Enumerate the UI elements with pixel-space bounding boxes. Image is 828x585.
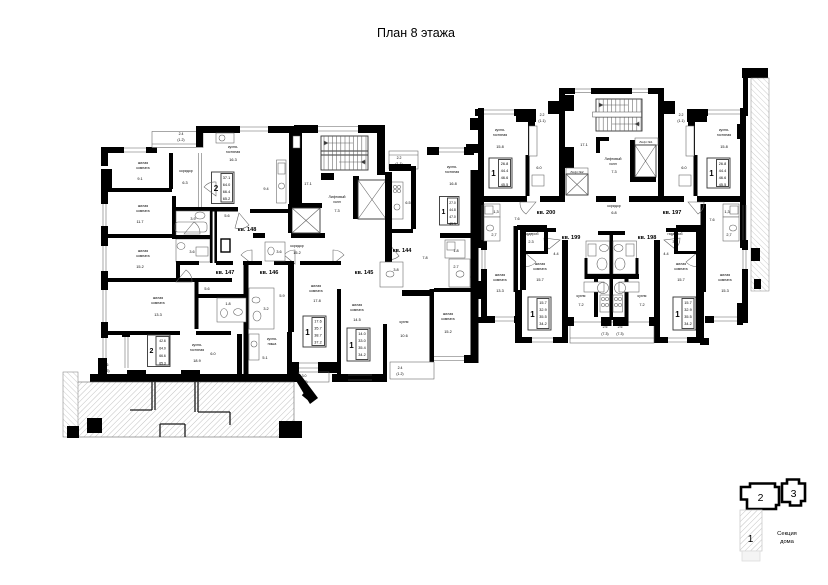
svg-text:34.2: 34.2 (358, 353, 365, 357)
svg-text:1: 1 (709, 169, 714, 178)
svg-text:кв. 198: кв. 198 (638, 235, 657, 241)
svg-text:2.3: 2.3 (528, 240, 533, 244)
svg-text:15.8: 15.8 (720, 145, 727, 149)
svg-text:1,3: 1,3 (724, 210, 729, 214)
svg-text:2.2: 2.2 (679, 113, 684, 117)
svg-text:кухня: кухня (577, 294, 586, 298)
svg-text:кв. 145: кв. 145 (355, 270, 374, 276)
svg-text:2: 2 (150, 348, 154, 355)
svg-text:комната: комната (718, 278, 731, 282)
svg-text:45.5: 45.5 (719, 183, 726, 187)
svg-text:кв. 147: кв. 147 (216, 270, 235, 276)
svg-text:11.7: 11.7 (136, 220, 143, 224)
svg-text:1: 1 (305, 328, 310, 337)
svg-text:32.9: 32.9 (684, 308, 691, 312)
svg-text:15.2: 15.2 (136, 265, 143, 269)
svg-text:7.8: 7.8 (422, 256, 427, 260)
svg-text:15.7: 15.7 (677, 278, 684, 282)
svg-text:13.3: 13.3 (496, 289, 503, 293)
svg-text:6.8: 6.8 (611, 211, 616, 215)
svg-text:15.2: 15.2 (444, 330, 451, 334)
svg-text:жилая: жилая (676, 262, 686, 266)
svg-text:1: 1 (675, 310, 680, 319)
svg-text:15.7: 15.7 (684, 301, 691, 305)
svg-text:жилая: жилая (311, 284, 321, 288)
svg-text:14.0: 14.0 (358, 332, 365, 336)
svg-text:(1.2): (1.2) (177, 138, 184, 142)
svg-text:7.3: 7.3 (334, 209, 339, 213)
svg-text:33.0: 33.0 (358, 339, 365, 343)
svg-text:34.2: 34.2 (539, 322, 546, 326)
svg-text:кв. 197: кв. 197 (663, 210, 682, 216)
svg-text:кухня-: кухня- (192, 343, 203, 347)
svg-text:комната: комната (136, 209, 149, 213)
svg-text:34.2: 34.2 (684, 322, 691, 326)
svg-text:9.4: 9.4 (263, 187, 268, 191)
svg-text:45.9: 45.9 (449, 222, 456, 226)
svg-text:1: 1 (530, 310, 535, 319)
svg-text:26.8: 26.8 (719, 162, 726, 166)
svg-text:2.6: 2.6 (104, 363, 109, 367)
svg-text:Лифтовый: Лифтовый (329, 195, 346, 199)
svg-text:37.2: 37.2 (314, 341, 321, 345)
svg-text:холл: холл (609, 162, 617, 166)
svg-text:2.2: 2.2 (540, 113, 545, 117)
svg-text:комната: комната (674, 267, 687, 271)
svg-text:Лифт №1: Лифт №1 (639, 140, 652, 144)
svg-text:6.0: 6.0 (536, 166, 541, 170)
svg-text:5.1: 5.1 (262, 356, 267, 360)
svg-text:Лифт №2: Лифт №2 (570, 170, 583, 174)
svg-text:кухня-: кухня- (719, 128, 730, 132)
svg-text:15.8: 15.8 (496, 145, 503, 149)
svg-text:2.4: 2.4 (398, 366, 403, 370)
svg-text:комната: комната (136, 166, 149, 170)
svg-text:кухня: кухня (638, 294, 647, 298)
svg-text:17.1: 17.1 (580, 143, 587, 147)
svg-text:кв. 200: кв. 200 (537, 210, 556, 216)
svg-text:27.0: 27.0 (449, 201, 456, 205)
svg-text:комната: комната (136, 254, 149, 258)
svg-text:кв. 146: кв. 146 (260, 270, 279, 276)
svg-text:45.5: 45.5 (501, 183, 508, 187)
svg-text:1: 1 (491, 169, 496, 178)
svg-text:комната: комната (533, 267, 546, 271)
svg-text:15.3: 15.3 (721, 289, 728, 293)
svg-text:44.8: 44.8 (449, 208, 456, 212)
svg-text:комната: комната (493, 278, 506, 282)
svg-text:2.7: 2.7 (453, 265, 458, 269)
svg-text:65.3: 65.3 (159, 362, 166, 366)
svg-text:холл: холл (333, 200, 341, 204)
svg-text:6.3: 6.3 (182, 181, 187, 185)
svg-text:(7.3): (7.3) (616, 332, 623, 336)
svg-text:(1.1): (1.1) (677, 119, 684, 123)
svg-text:4.4: 4.4 (553, 252, 558, 256)
svg-text:жилая: жилая (535, 262, 545, 266)
svg-text:5.6: 5.6 (224, 214, 229, 218)
svg-text:(1.1): (1.1) (538, 119, 545, 123)
svg-text:13.3: 13.3 (154, 313, 161, 317)
svg-text:17.1: 17.1 (304, 182, 311, 186)
svg-text:18.9: 18.9 (193, 359, 200, 363)
svg-text:5.9: 5.9 (279, 294, 284, 298)
svg-text:жилая: жилая (352, 303, 362, 307)
svg-text:кухня: кухня (400, 320, 409, 324)
svg-text:3.6: 3.6 (189, 250, 194, 254)
svg-text:2,7: 2,7 (491, 233, 496, 237)
svg-text:17.8: 17.8 (313, 299, 320, 303)
svg-text:35.5: 35.5 (539, 315, 546, 319)
svg-text:комната: комната (309, 289, 322, 293)
svg-text:жилая: жилая (720, 273, 730, 277)
svg-text:7.6: 7.6 (709, 218, 714, 222)
svg-text:16.3: 16.3 (229, 158, 236, 162)
svg-text:7.2: 7.2 (639, 303, 644, 307)
svg-text:1.8: 1.8 (225, 302, 230, 306)
svg-text:кухня-: кухня- (447, 165, 458, 169)
svg-text:(1.3): (1.3) (102, 369, 109, 373)
svg-text:гостиная: гостиная (445, 170, 459, 174)
svg-text:2: 2 (758, 492, 764, 504)
svg-text:2.4: 2.4 (179, 132, 184, 136)
svg-text:44.4: 44.4 (501, 169, 508, 173)
svg-text:комната: комната (350, 308, 363, 312)
svg-text:16.8: 16.8 (449, 182, 456, 186)
svg-text:жилая: жилая (495, 273, 505, 277)
svg-text:2,7: 2,7 (726, 233, 731, 237)
svg-text:6.0: 6.0 (681, 166, 686, 170)
svg-text:32.9: 32.9 (539, 308, 546, 312)
svg-text:гостиная: гостиная (717, 133, 731, 137)
svg-text:3.8: 3.8 (393, 268, 398, 272)
svg-text:Секция: Секция (777, 531, 797, 537)
svg-text:37.1: 37.1 (223, 176, 230, 180)
svg-text:46.6: 46.6 (719, 176, 726, 180)
svg-text:1,3: 1,3 (493, 210, 498, 214)
svg-text:жилая: жилая (443, 312, 453, 316)
svg-text:План 8 этажа: План 8 этажа (377, 26, 455, 40)
svg-text:64.0: 64.0 (159, 347, 166, 351)
svg-text:кв. 148: кв. 148 (238, 227, 257, 233)
svg-text:гостиная: гостиная (493, 133, 507, 137)
svg-text:коридор: коридор (290, 244, 303, 248)
svg-text:Лифтовый: Лифтовый (605, 157, 622, 161)
svg-text:2.2: 2.2 (397, 156, 402, 160)
svg-text:кухня-: кухня- (495, 128, 506, 132)
svg-text:коридор: коридор (607, 204, 620, 208)
svg-text:7.6: 7.6 (514, 217, 519, 221)
svg-text:комната: комната (151, 301, 164, 305)
svg-text:17.6: 17.6 (314, 320, 321, 324)
svg-text:1.8: 1.8 (453, 249, 458, 253)
svg-text:(1.2): (1.2) (396, 372, 403, 376)
svg-text:7.3: 7.3 (611, 170, 616, 174)
svg-text:66.6: 66.6 (159, 354, 166, 358)
svg-text:кв. 144: кв. 144 (393, 248, 413, 254)
svg-text:38.7: 38.7 (314, 334, 321, 338)
svg-text:жилая: жилая (153, 296, 163, 300)
svg-text:коридор: коридор (179, 169, 192, 173)
svg-text:1: 1 (442, 209, 446, 216)
svg-text:65.2: 65.2 (223, 197, 230, 201)
svg-text:35.7: 35.7 (314, 327, 321, 331)
svg-text:44.4: 44.4 (719, 169, 726, 173)
svg-text:47.0: 47.0 (449, 215, 456, 219)
svg-text:3.6: 3.6 (276, 250, 281, 254)
svg-text:6.0: 6.0 (210, 352, 215, 356)
svg-text:жилая: жилая (138, 249, 148, 253)
svg-text:6.5: 6.5 (405, 201, 410, 205)
svg-text:1: 1 (748, 534, 754, 545)
svg-text:66.4: 66.4 (223, 190, 230, 194)
svg-text:4.4: 4.4 (663, 252, 668, 256)
svg-text:7.2: 7.2 (578, 303, 583, 307)
svg-text:14.5: 14.5 (353, 318, 360, 322)
svg-text:35.5: 35.5 (684, 315, 691, 319)
svg-text:15.2: 15.2 (293, 251, 300, 255)
svg-text:3.9: 3.9 (190, 217, 195, 221)
svg-text:64.0: 64.0 (223, 183, 230, 187)
svg-text:3: 3 (791, 488, 797, 500)
svg-text:кухня-: кухня- (267, 337, 278, 341)
svg-text:гостиная: гостиная (226, 150, 240, 154)
svg-text:2.6: 2.6 (618, 325, 623, 329)
svg-text:1: 1 (349, 341, 354, 350)
svg-text:комната: комната (441, 317, 454, 321)
svg-text:35.4: 35.4 (358, 346, 365, 350)
svg-text:(7.3): (7.3) (601, 332, 608, 336)
svg-text:5.6: 5.6 (204, 287, 209, 291)
svg-text:9.1: 9.1 (137, 177, 142, 181)
svg-text:26.8: 26.8 (501, 162, 508, 166)
svg-text:10.6: 10.6 (400, 334, 407, 338)
svg-text:кухня-: кухня- (228, 145, 239, 149)
svg-text:46.6: 46.6 (501, 176, 508, 180)
svg-text:2.6: 2.6 (603, 325, 608, 329)
svg-text:гостиная: гостиная (190, 348, 204, 352)
svg-text:15.7: 15.7 (539, 301, 546, 305)
svg-text:ниша: ниша (268, 342, 277, 346)
svg-text:жилая: жилая (138, 161, 148, 165)
svg-text:дома: дома (780, 539, 795, 545)
svg-text:3.2: 3.2 (263, 307, 268, 311)
svg-text:42.6: 42.6 (159, 339, 166, 343)
svg-text:15.7: 15.7 (536, 278, 543, 282)
svg-text:жилая: жилая (138, 204, 148, 208)
